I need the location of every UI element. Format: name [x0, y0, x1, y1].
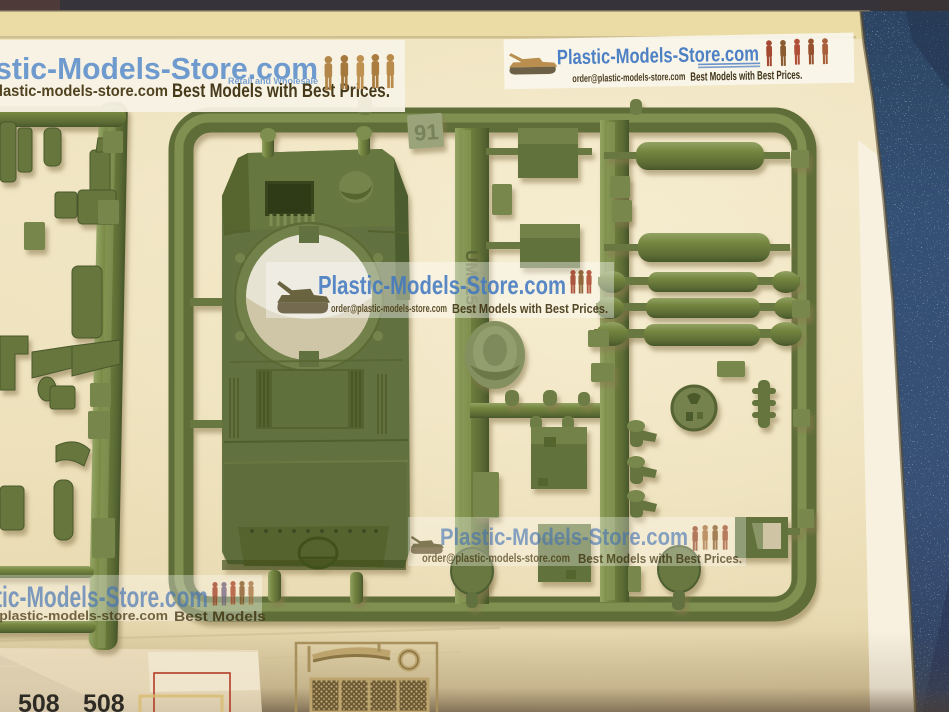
svg-text:91: 91	[413, 119, 439, 146]
svg-text:order@plastic-models-store.com: order@plastic-models-store.com	[0, 608, 168, 623]
svg-text:order@plastic-models-store.com: order@plastic-models-store.com	[422, 553, 570, 565]
svg-text:order@plastic-models-store.com: order@plastic-models-store.com	[572, 71, 685, 85]
svg-text:508: 508	[18, 690, 60, 712]
svg-text:Plastic-Models-Store.com: Plastic-Models-Store.com	[440, 524, 688, 551]
svg-text:Best Models with Best Prices.: Best Models with Best Prices.	[452, 302, 608, 316]
svg-text:order@plastic-models-store.com: order@plastic-models-store.com	[331, 303, 447, 315]
svg-text:Best Models with Best Prices.: Best Models with Best Prices.	[578, 552, 742, 566]
svg-text:Plastic-Models-Store.com: Plastic-Models-Store.com	[318, 270, 566, 300]
svg-text:Plastic-Models-Store.com: Plastic-Models-Store.com	[557, 42, 759, 69]
svg-text:Best Models with Best Prices.: Best Models with Best Prices.	[690, 68, 802, 84]
svg-text:508: 508	[83, 690, 125, 712]
svg-text:order@plastic-models-store.com: order@plastic-models-store.com	[0, 83, 168, 100]
svg-text:Best Models: Best Models	[174, 609, 266, 624]
